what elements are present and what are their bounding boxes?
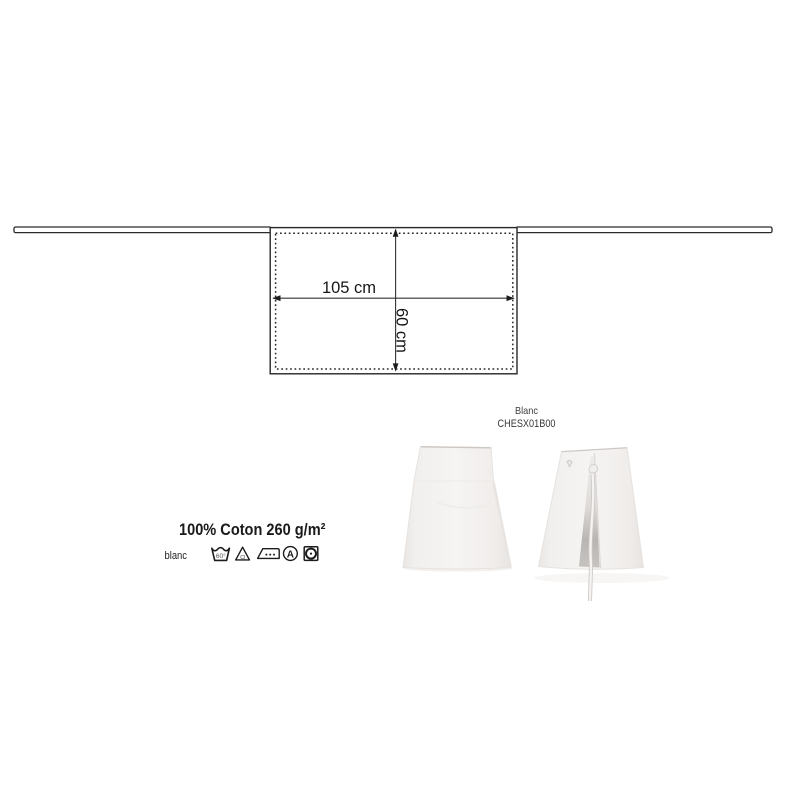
svg-text:105 cm: 105 cm: [322, 279, 376, 297]
svg-text:60 cm: 60 cm: [393, 308, 411, 353]
svg-text:60°: 60°: [216, 552, 226, 560]
svg-text:100% Coton 260 g/m²: 100% Coton 260 g/m²: [179, 520, 326, 539]
svg-text:Cl: Cl: [240, 555, 245, 561]
svg-text:blanc: blanc: [165, 550, 188, 562]
svg-text:Blanc: Blanc: [515, 405, 538, 417]
svg-text:A: A: [287, 549, 294, 560]
svg-text:CHESX01B00: CHESX01B00: [498, 418, 556, 430]
